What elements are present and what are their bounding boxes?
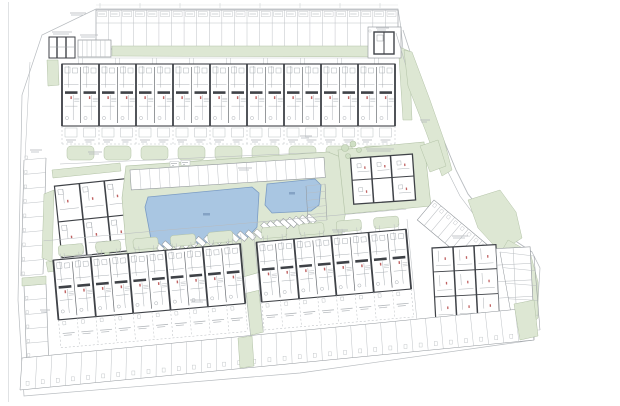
site-plan-sheet <box>0 0 620 406</box>
pool-small <box>265 179 321 213</box>
substation <box>368 27 401 58</box>
site-plan-drawing <box>0 0 620 406</box>
allotment-strip <box>96 3 398 52</box>
terrace-row-north <box>62 58 395 144</box>
clubhouse-block <box>338 141 431 214</box>
clubhouse-building <box>351 154 416 204</box>
